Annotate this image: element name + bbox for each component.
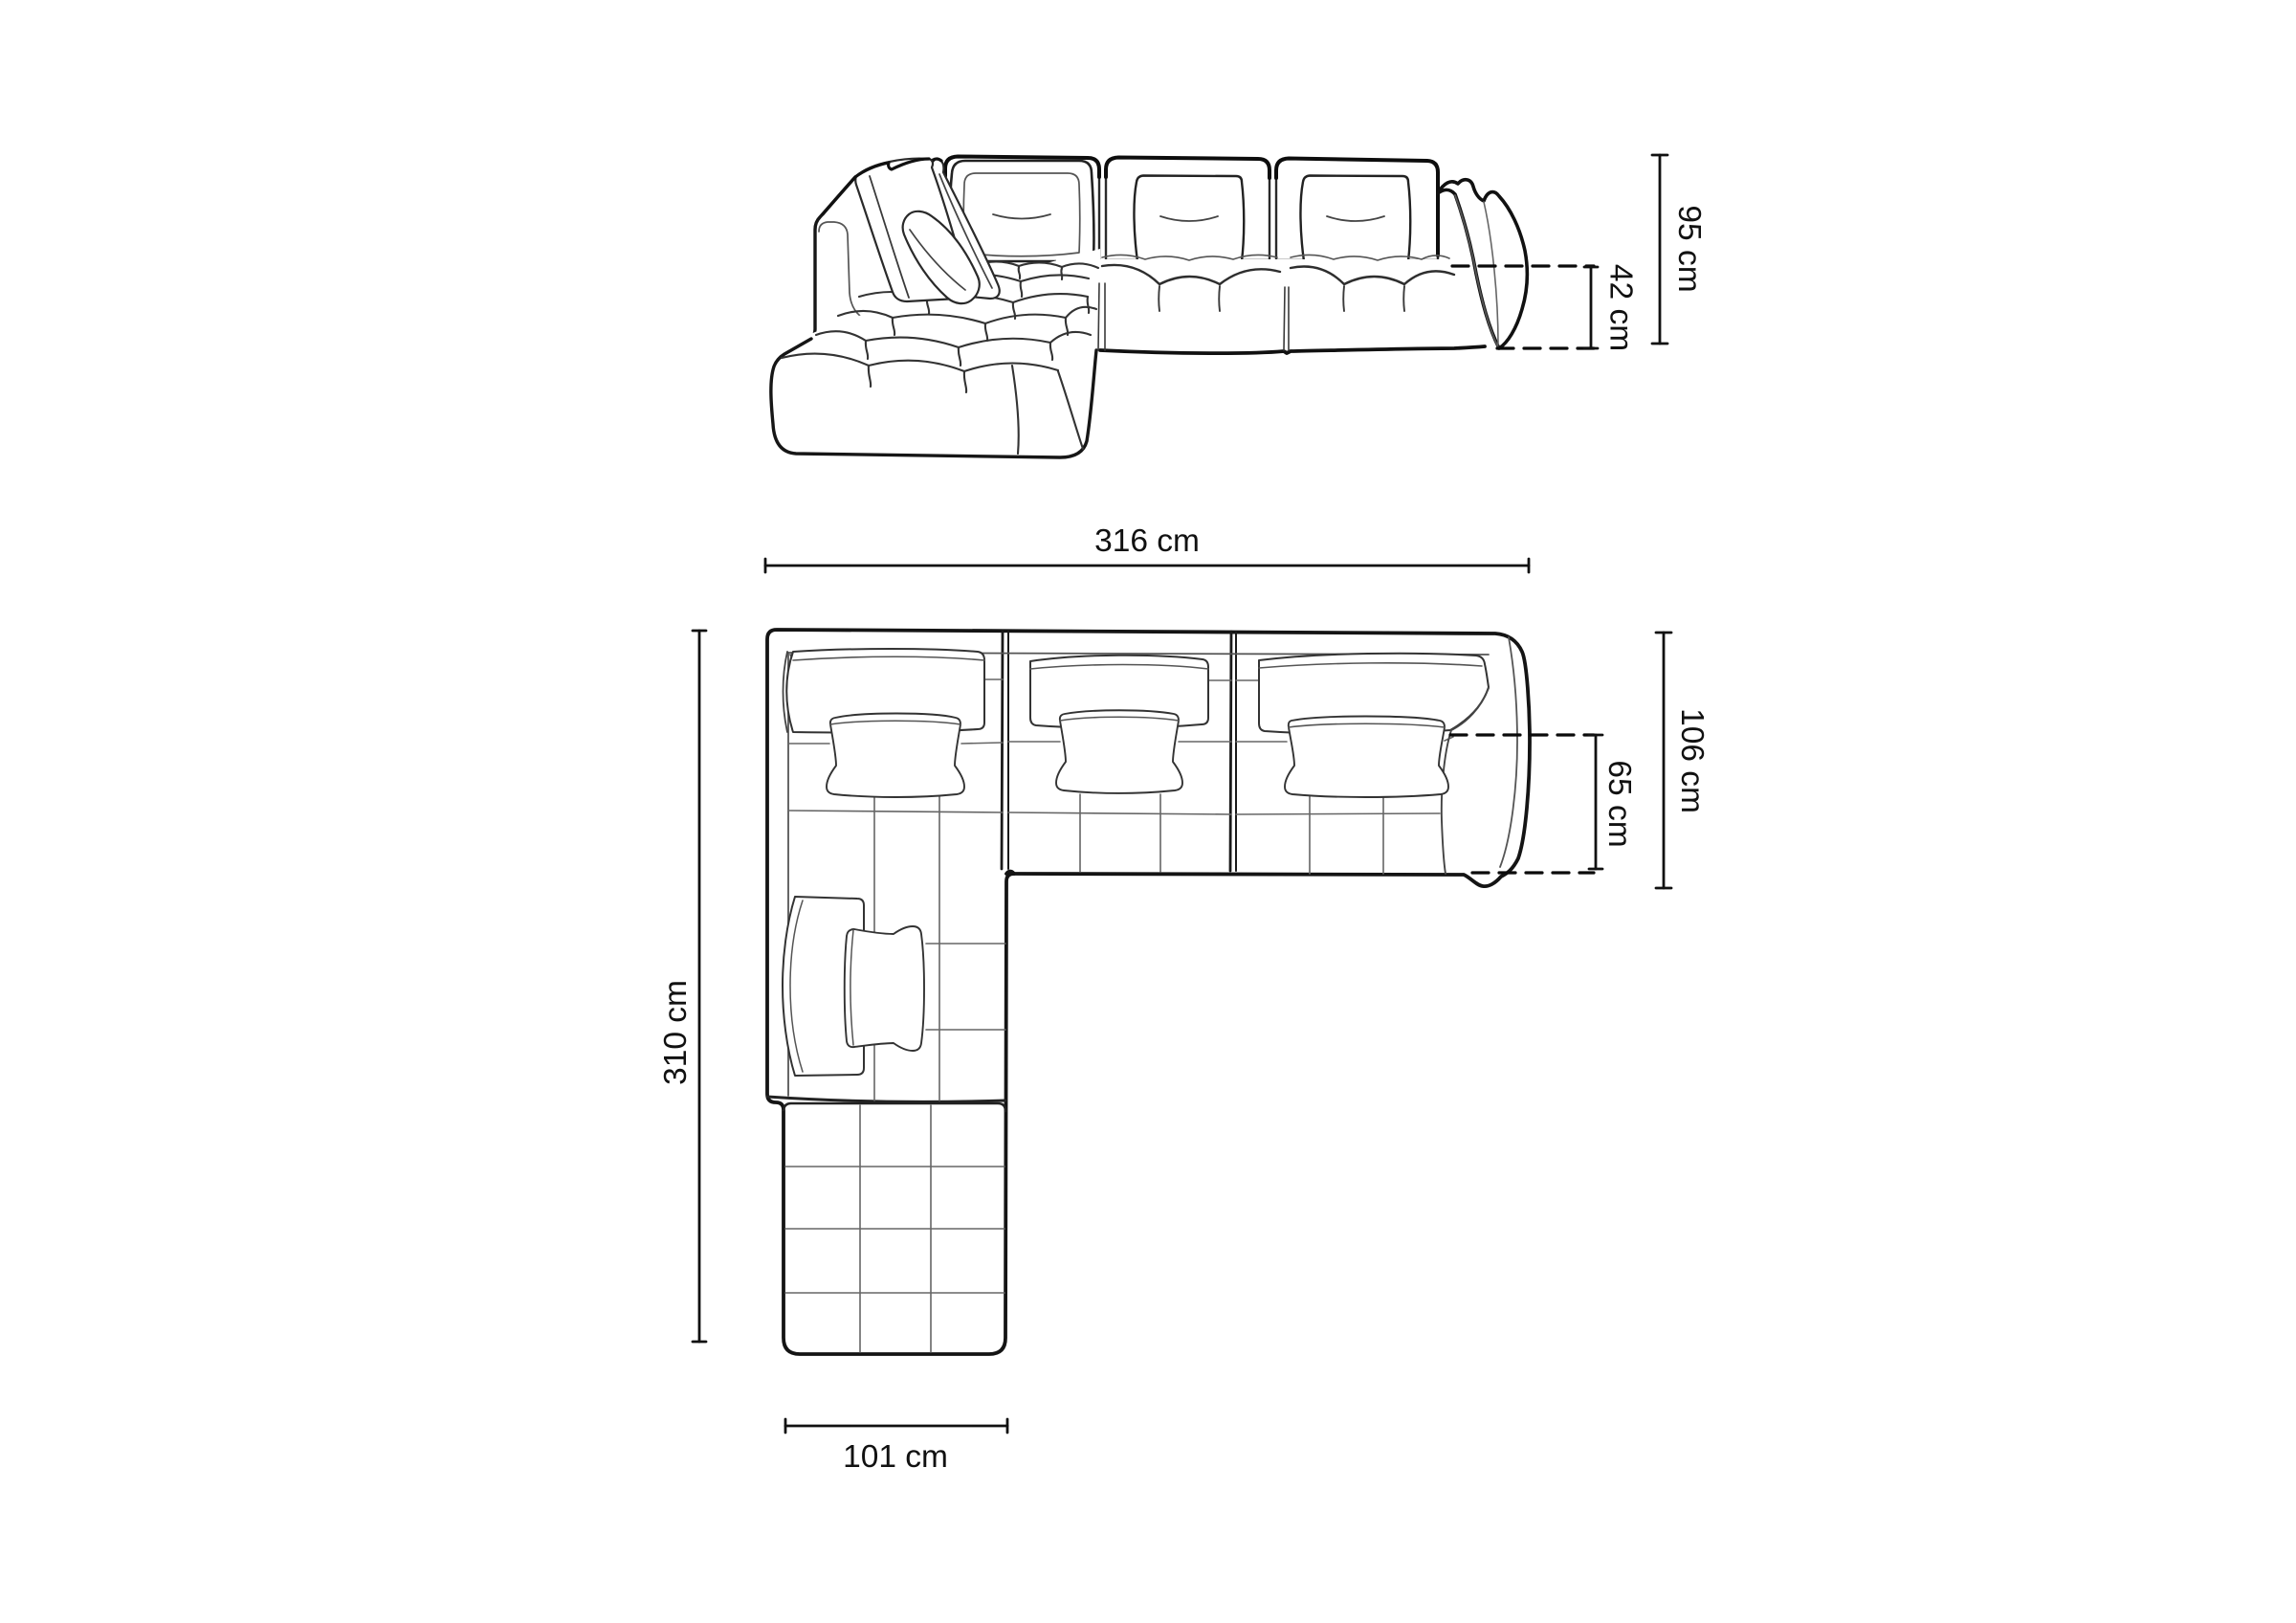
svg-text:42 cm: 42 cm [1603,264,1639,351]
svg-text:65 cm: 65 cm [1601,760,1637,847]
svg-text:316 cm: 316 cm [1094,523,1200,559]
svg-text:95 cm: 95 cm [1671,205,1707,292]
svg-text:101 cm: 101 cm [843,1439,948,1475]
svg-text:310 cm: 310 cm [658,980,694,1085]
svg-text:106 cm: 106 cm [1674,708,1710,813]
